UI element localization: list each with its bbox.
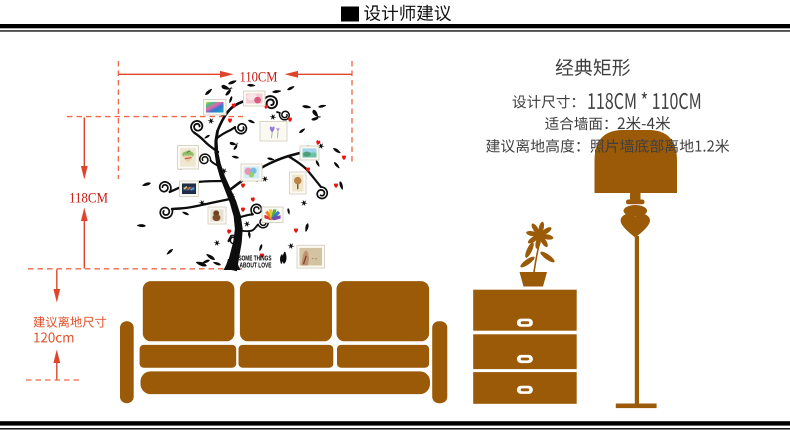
svg-text:110CM: 110CM <box>240 69 278 86</box>
svg-text:118CM: 118CM <box>69 189 108 206</box>
svg-text:ABOUT LOVE: ABOUT LOVE <box>240 263 272 270</box>
